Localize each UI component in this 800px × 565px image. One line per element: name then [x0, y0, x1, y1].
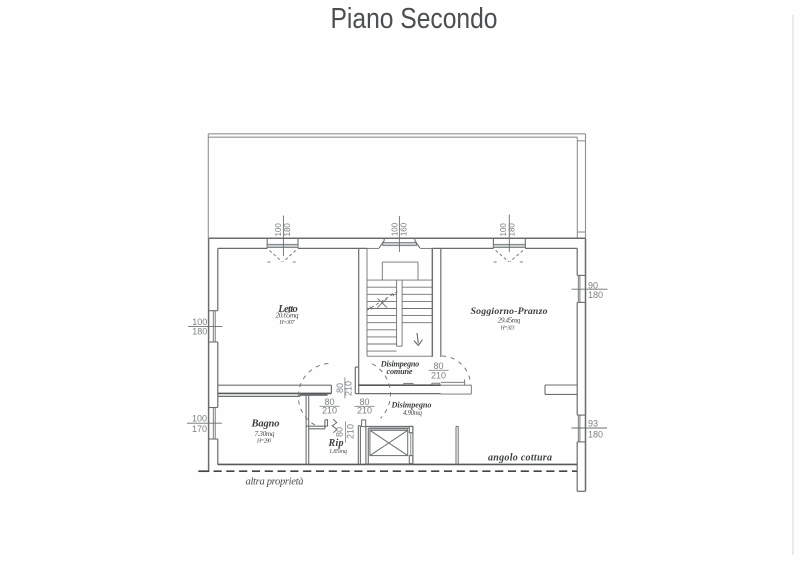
- svg-text:altra proprietà: altra proprietà: [246, 477, 304, 488]
- svg-text:100: 100: [391, 222, 400, 236]
- svg-text:180: 180: [192, 327, 207, 337]
- svg-text:180: 180: [508, 223, 517, 237]
- svg-text:Bagno: Bagno: [251, 418, 280, 429]
- svg-text:180: 180: [283, 223, 292, 237]
- svg-text:210: 210: [322, 406, 337, 416]
- svg-text:180: 180: [588, 429, 603, 439]
- svg-text:4.90mq: 4.90mq: [403, 409, 423, 417]
- svg-text:160: 160: [400, 222, 409, 236]
- svg-text:comune: comune: [387, 367, 413, 376]
- svg-text:20.65mq: 20.65mq: [276, 311, 299, 320]
- svg-text:100: 100: [192, 317, 207, 327]
- svg-text:100: 100: [192, 413, 207, 423]
- svg-text:93: 93: [588, 419, 598, 429]
- svg-text:angolo cottura: angolo cottura: [488, 453, 552, 464]
- svg-text:1.85mq: 1.85mq: [329, 448, 348, 455]
- svg-text:7.30mq: 7.30mq: [255, 429, 275, 438]
- svg-text:H=290: H=290: [256, 438, 271, 444]
- svg-text:80: 80: [433, 361, 443, 371]
- svg-text:100: 100: [499, 223, 508, 237]
- svg-text:Piano Secondo: Piano Secondo: [331, 3, 498, 35]
- svg-text:H=307: H=307: [279, 320, 296, 326]
- svg-text:180: 180: [588, 290, 603, 300]
- svg-text:29.45mq: 29.45mq: [498, 315, 521, 324]
- svg-text:H=313: H=313: [500, 326, 515, 332]
- svg-text:80: 80: [334, 427, 344, 437]
- svg-text:210: 210: [345, 424, 355, 439]
- svg-text:100: 100: [274, 223, 283, 237]
- svg-text:170: 170: [192, 424, 207, 434]
- svg-text:210: 210: [344, 381, 354, 396]
- svg-text:210: 210: [357, 406, 372, 416]
- svg-text:210: 210: [431, 370, 446, 380]
